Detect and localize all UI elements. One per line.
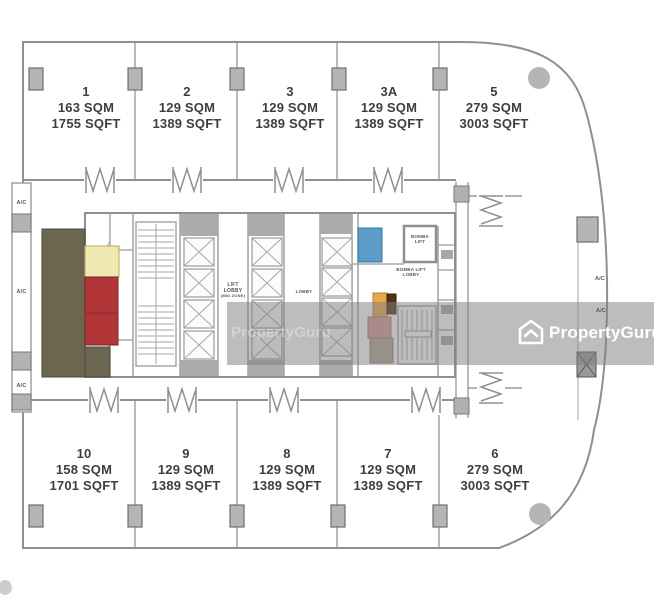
ac-label-right-1: A/C — [589, 276, 611, 283]
unit-area-sqm: 158 SQM — [29, 462, 139, 478]
unit-number: 5 — [439, 84, 549, 100]
unit-area-sqft: 1389 SQFT — [132, 116, 242, 132]
unit-area-sqft: 3003 SQFT — [440, 478, 550, 494]
room-red — [85, 277, 118, 345]
unit-area-sqft: 1389 SQFT — [334, 116, 444, 132]
lobby-label: LOBBY — [291, 289, 317, 294]
unit-label-1: 1 163 SQM 1755 SQFT — [31, 84, 141, 132]
unit-label-9: 9 129 SQM 1389 SQFT — [131, 446, 241, 494]
ac-label-left-3: A/C — [11, 383, 32, 390]
unit-area-sqft: 1389 SQFT — [333, 478, 443, 494]
unit-area-sqft: 1701 SQFT — [29, 478, 139, 494]
unit-label-2: 2 129 SQM 1389 SQFT — [132, 84, 242, 132]
propertyguru-logo-icon — [516, 317, 546, 347]
ac-label-right-2: A/C — [590, 308, 612, 315]
unit-number: 10 — [29, 446, 139, 462]
room-yellow — [85, 246, 119, 277]
ac-ledge — [12, 183, 31, 412]
unit-number: 8 — [232, 446, 342, 462]
unit-area-sqm: 279 SQM — [439, 100, 549, 116]
unit-label-3: 3 129 SQM 1389 SQFT — [235, 84, 345, 132]
unit-label-6: 6 279 SQM 3003 SQFT — [440, 446, 550, 494]
unit-area-sqm: 129 SQM — [235, 100, 345, 116]
unit-area-sqm: 163 SQM — [31, 100, 141, 116]
unit-number: 2 — [132, 84, 242, 100]
bomba-lift-label: BOMBA LIFT — [404, 234, 436, 245]
unit-area-sqft: 1389 SQFT — [232, 478, 342, 494]
unit-area-sqft: 1389 SQFT — [131, 478, 241, 494]
unit-label-3a: 3A 129 SQM 1389 SQFT — [334, 84, 444, 132]
watermark-brand-text: PropertyGuru — [549, 323, 654, 343]
staircase-left — [136, 222, 176, 366]
unit-area-sqm: 279 SQM — [440, 462, 550, 478]
unit-number: 3 — [235, 84, 345, 100]
unit-area-sqm: 129 SQM — [334, 100, 444, 116]
unit-number: 6 — [440, 446, 550, 462]
ac-label-left-2: A/C — [11, 289, 32, 296]
unit-area-sqft: 1389 SQFT — [235, 116, 345, 132]
bomba-lift-lobby-label: BOMBA LIFT LOBBY — [383, 267, 439, 278]
unit-label-7: 7 129 SQM 1389 SQFT — [333, 446, 443, 494]
watermark-faint-text: PropertyGuru — [231, 324, 331, 341]
unit-number: 9 — [131, 446, 241, 462]
unit-label-10: 10 158 SQM 1701 SQFT — [29, 446, 139, 494]
lift-lobby-label: LIFT LOBBY (MID ZONE) — [215, 282, 251, 299]
unit-label-8: 8 129 SQM 1389 SQFT — [232, 446, 342, 494]
unit-area-sqft: 1755 SQFT — [31, 116, 141, 132]
unit-area-sqft: 3003 SQFT — [439, 116, 549, 132]
unit-area-sqm: 129 SQM — [333, 462, 443, 478]
unit-number: 3A — [334, 84, 444, 100]
unit-label-5: 5 279 SQM 3003 SQFT — [439, 84, 549, 132]
unit-area-sqm: 129 SQM — [131, 462, 241, 478]
unit-number: 7 — [333, 446, 443, 462]
room-blue — [358, 228, 382, 262]
unit-area-sqm: 129 SQM — [232, 462, 342, 478]
unit-number: 1 — [31, 84, 141, 100]
floorplan-canvas: PropertyGuru PropertyGuru 1 163 SQM 1755… — [0, 0, 654, 600]
unit-area-sqm: 129 SQM — [132, 100, 242, 116]
ac-label-left-1: A/C — [11, 200, 32, 207]
